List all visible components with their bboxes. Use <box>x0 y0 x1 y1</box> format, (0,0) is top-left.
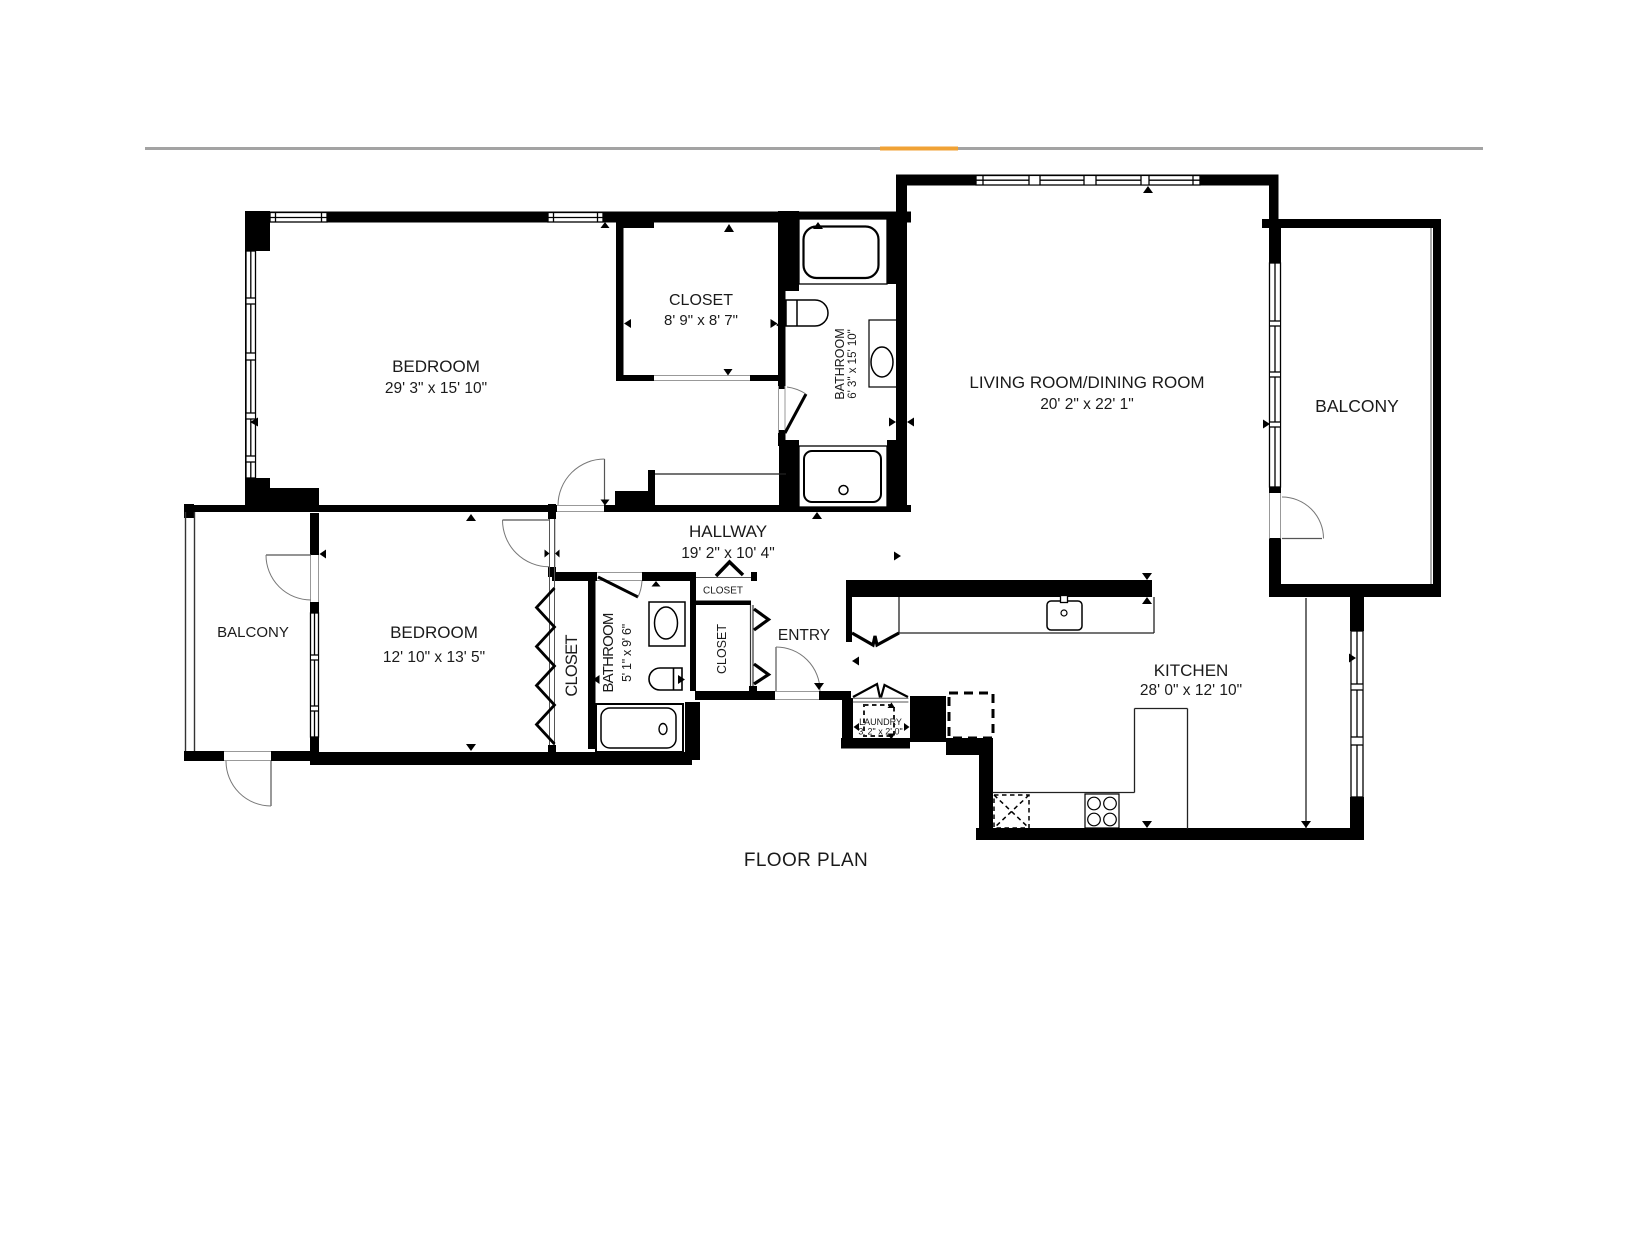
svg-text:HALLWAY: HALLWAY <box>689 522 767 541</box>
svg-text:19' 2" x 10' 4": 19' 2" x 10' 4" <box>681 545 775 562</box>
svg-text:BEDROOM: BEDROOM <box>390 623 478 642</box>
svg-text:28' 0" x 12' 10": 28' 0" x 12' 10" <box>1140 682 1242 699</box>
svg-text:29' 3" x 15' 10": 29' 3" x 15' 10" <box>385 380 487 397</box>
svg-text:FLOOR PLAN: FLOOR PLAN <box>744 850 868 871</box>
svg-text:ENTRY: ENTRY <box>778 627 830 644</box>
svg-text:CLOSET: CLOSET <box>563 635 581 697</box>
svg-text:12' 10" x 13' 5": 12' 10" x 13' 5" <box>383 649 485 666</box>
svg-text:BATHROOM: BATHROOM <box>833 328 847 399</box>
svg-text:BALCONY: BALCONY <box>1315 396 1399 416</box>
svg-text:CLOSET: CLOSET <box>715 624 729 674</box>
svg-text:3' 2" x 2' 0": 3' 2" x 2' 0" <box>858 727 902 737</box>
svg-text:5' 1" x 9' 6": 5' 1" x 9' 6" <box>620 624 634 682</box>
svg-text:LIVING ROOM/DINING ROOM: LIVING ROOM/DINING ROOM <box>969 373 1204 392</box>
svg-text:CLOSET: CLOSET <box>669 292 733 309</box>
svg-text:BATHROOM: BATHROOM <box>600 613 617 692</box>
svg-text:BALCONY: BALCONY <box>217 624 289 641</box>
svg-text:KITCHEN: KITCHEN <box>1154 661 1229 680</box>
svg-text:8' 9" x 8' 7": 8' 9" x 8' 7" <box>664 312 738 329</box>
svg-text:CLOSET: CLOSET <box>703 586 743 597</box>
svg-text:6' 3" x 15' 10": 6' 3" x 15' 10" <box>847 329 859 398</box>
svg-text:LAUNDRY: LAUNDRY <box>859 717 902 727</box>
svg-text:BEDROOM: BEDROOM <box>392 357 480 376</box>
svg-text:20' 2" x 22' 1": 20' 2" x 22' 1" <box>1040 396 1134 413</box>
